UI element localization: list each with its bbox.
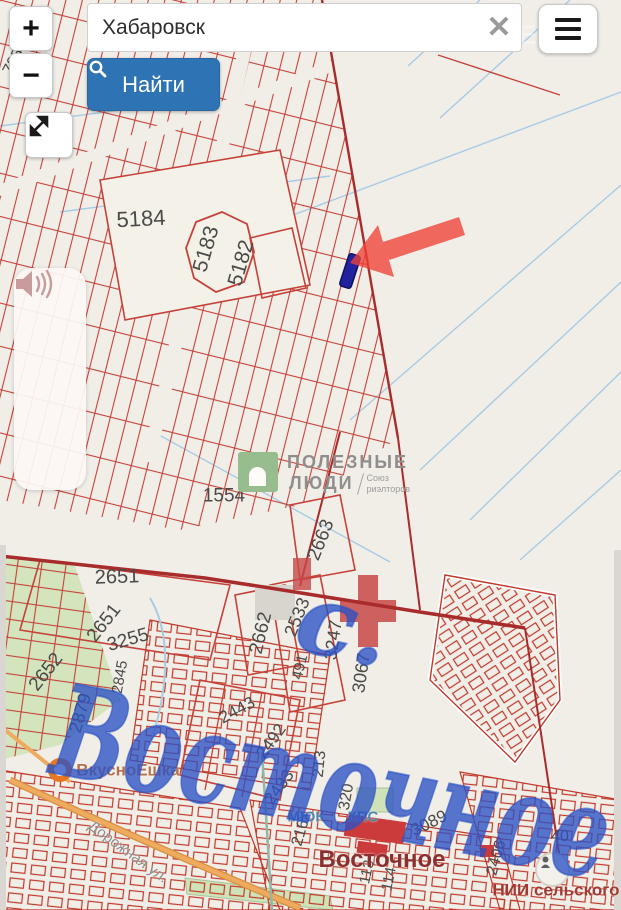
hamburger-icon xyxy=(555,18,581,22)
fullscreen-button[interactable] xyxy=(25,112,73,158)
speaker-icon[interactable] xyxy=(14,268,54,300)
find-button[interactable]: Найти xyxy=(87,58,220,111)
find-button-label: Найти xyxy=(122,72,185,98)
map-app-window: 7855184518351821554266326512651325526622… xyxy=(0,0,621,910)
search-box: ✕ xyxy=(87,3,522,52)
geo-marker-badge[interactable] xyxy=(535,852,570,887)
menu-button[interactable] xyxy=(538,4,598,54)
zoom-in-button[interactable]: + xyxy=(9,6,53,51)
compass-icon xyxy=(537,854,554,871)
side-panel[interactable] xyxy=(14,268,86,490)
clear-search-icon[interactable]: ✕ xyxy=(477,10,521,45)
expand-arrows-icon xyxy=(26,113,52,139)
zoom-out-button[interactable]: − xyxy=(9,53,53,98)
search-input[interactable] xyxy=(88,16,477,40)
search-icon xyxy=(88,59,107,78)
map-canvas[interactable] xyxy=(0,0,621,910)
